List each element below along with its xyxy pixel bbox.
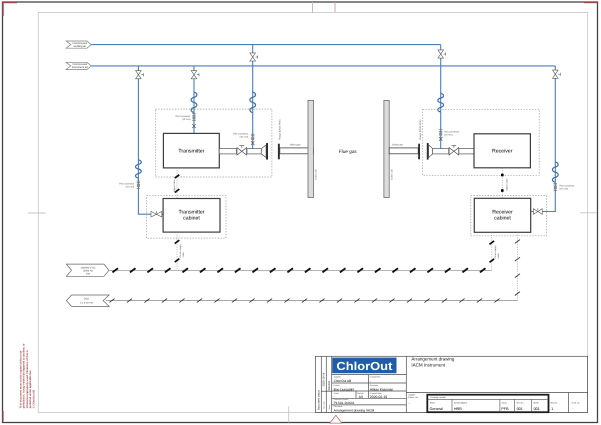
svg-text:Power supply: Power supply bbox=[179, 243, 182, 257]
svg-text:Flue gas: Flue gas bbox=[339, 149, 358, 154]
svg-text:Coordinator: Coordinator bbox=[370, 376, 381, 379]
svg-text:IACM Instrument: IACM Instrument bbox=[411, 363, 446, 368]
svg-text:Document status: Document status bbox=[318, 389, 321, 410]
svg-text:Cont. sh.: Cont. sh. bbox=[572, 401, 581, 404]
svg-text:cabinet: cabinet bbox=[183, 216, 200, 222]
svg-text:10A: 10A bbox=[86, 272, 91, 275]
svg-text:Signal cable: Signal cable bbox=[505, 178, 508, 191]
svg-text:Part connector: Part connector bbox=[119, 182, 134, 185]
svg-text:Power supply: Power supply bbox=[494, 245, 497, 259]
svg-text:Instrument air: Instrument air bbox=[72, 66, 88, 69]
svg-text:-: - bbox=[370, 379, 371, 383]
svg-text:P1S01-D4S01: P1S01-D4S01 bbox=[334, 401, 355, 405]
svg-text:2 x 4-20 mA: 2 x 4-20 mA bbox=[80, 302, 93, 305]
svg-text:Flange (DN25 PN6): Flange (DN25 PN6) bbox=[278, 119, 281, 139]
svg-text:PFB: PFB bbox=[501, 407, 509, 411]
svg-text:HRB: HRB bbox=[454, 407, 462, 411]
svg-text:System/object: System/object bbox=[454, 401, 467, 404]
svg-text:Arrangement drawing IACM: Arrangement drawing IACM bbox=[334, 409, 375, 413]
svg-text:Class: Class bbox=[502, 401, 507, 404]
svg-text:Part connector: Part connector bbox=[560, 185, 575, 188]
svg-text:(10 mm): (10 mm) bbox=[240, 135, 249, 138]
svg-text:(10 mm): (10 mm) bbox=[444, 133, 453, 136]
svg-text:boiler wall: boiler wall bbox=[391, 169, 394, 180]
svg-text:-: - bbox=[572, 406, 573, 410]
svg-text:boiler wall: boiler wall bbox=[315, 169, 318, 180]
svg-text:Ser. No.: Ser. No. bbox=[516, 401, 524, 404]
svg-text:Boo Ljungdahl: Boo Ljungdahl bbox=[334, 387, 355, 391]
svg-text:DN40 pipe: DN40 pipe bbox=[290, 144, 302, 147]
svg-text:Transmitter: Transmitter bbox=[178, 149, 204, 155]
svg-text:ISSUED: ISSUED bbox=[328, 381, 331, 391]
svg-text:(10 mm): (10 mm) bbox=[126, 185, 135, 188]
svg-text:© ChlorOut AB: © ChlorOut AB bbox=[33, 390, 36, 408]
svg-text:Project. No.: Project. No. bbox=[408, 396, 419, 399]
svg-text:2020-10-14: 2020-10-14 bbox=[323, 372, 326, 386]
svg-text:Plant: Plant bbox=[430, 401, 435, 404]
svg-text:Receiver: Receiver bbox=[492, 149, 513, 155]
svg-text:Part connector: Part connector bbox=[444, 130, 459, 133]
svg-text:Håkan Kassman: Håkan Kassman bbox=[370, 387, 394, 391]
svg-text:Sheet: Sheet bbox=[533, 401, 539, 404]
svg-text:cable: cable bbox=[182, 251, 185, 257]
svg-text:Flange (DN25 PN6): Flange (DN25 PN6) bbox=[419, 119, 422, 139]
svg-text:General: General bbox=[430, 407, 443, 411]
svg-text:-: - bbox=[409, 401, 410, 405]
svg-text:-: - bbox=[334, 395, 335, 399]
svg-text:A3: A3 bbox=[359, 395, 363, 399]
svg-text:cable: cable bbox=[497, 253, 500, 259]
svg-text:ChlorOut AB: ChlorOut AB bbox=[334, 379, 352, 383]
svg-text:cabinet: cabinet bbox=[494, 216, 511, 222]
svg-text:ChlorOut: ChlorOut bbox=[336, 360, 392, 373]
svg-text:Part connector: Part connector bbox=[175, 115, 190, 118]
svg-text:Signal cable: Signal cable bbox=[173, 179, 176, 192]
svg-text:working air: working air bbox=[74, 45, 87, 48]
svg-text:(10 mm): (10 mm) bbox=[182, 118, 191, 121]
svg-text:Status: Status bbox=[328, 405, 331, 410]
svg-text:Arrangement drawing: Arrangement drawing bbox=[411, 357, 455, 362]
svg-text:Part connector: Part connector bbox=[233, 132, 248, 135]
svg-text:001: 001 bbox=[517, 407, 523, 411]
svg-text:Rev. date: Rev. date bbox=[323, 401, 326, 409]
svg-text:DCS: DCS bbox=[84, 298, 89, 301]
svg-text:1: 1 bbox=[551, 407, 553, 411]
svg-text:DN40 pipe: DN40 pipe bbox=[392, 144, 404, 147]
svg-text:Drawing number: Drawing number bbox=[431, 396, 447, 399]
svg-text:2020-02-19: 2020-02-19 bbox=[370, 395, 387, 399]
svg-text:001: 001 bbox=[534, 407, 540, 411]
svg-text:Rev.no: Rev.no bbox=[551, 401, 558, 404]
svg-text:(10 mm): (10 mm) bbox=[560, 188, 569, 191]
